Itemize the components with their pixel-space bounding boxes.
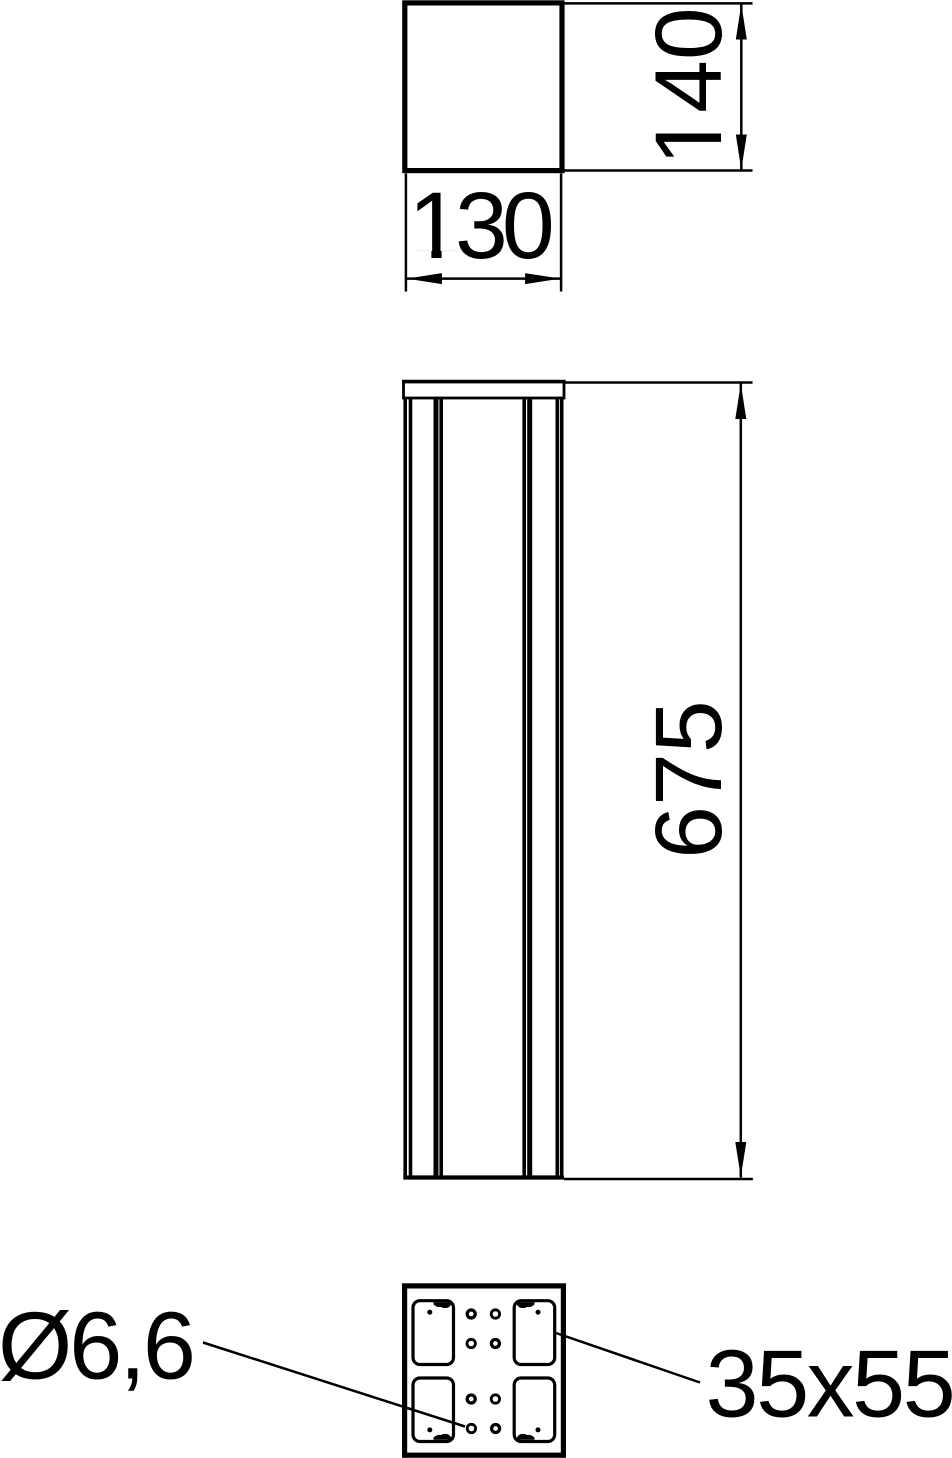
svg-text:Ø6,6: Ø6,6 xyxy=(0,1294,193,1400)
svg-text:675: 675 xyxy=(636,700,742,859)
svg-text:0: 0 xyxy=(502,173,555,279)
svg-text:3: 3 xyxy=(455,173,508,279)
svg-text:35x55: 35x55 xyxy=(706,1332,952,1438)
svg-text:1: 1 xyxy=(408,173,461,279)
svg-text:140: 140 xyxy=(636,7,742,166)
